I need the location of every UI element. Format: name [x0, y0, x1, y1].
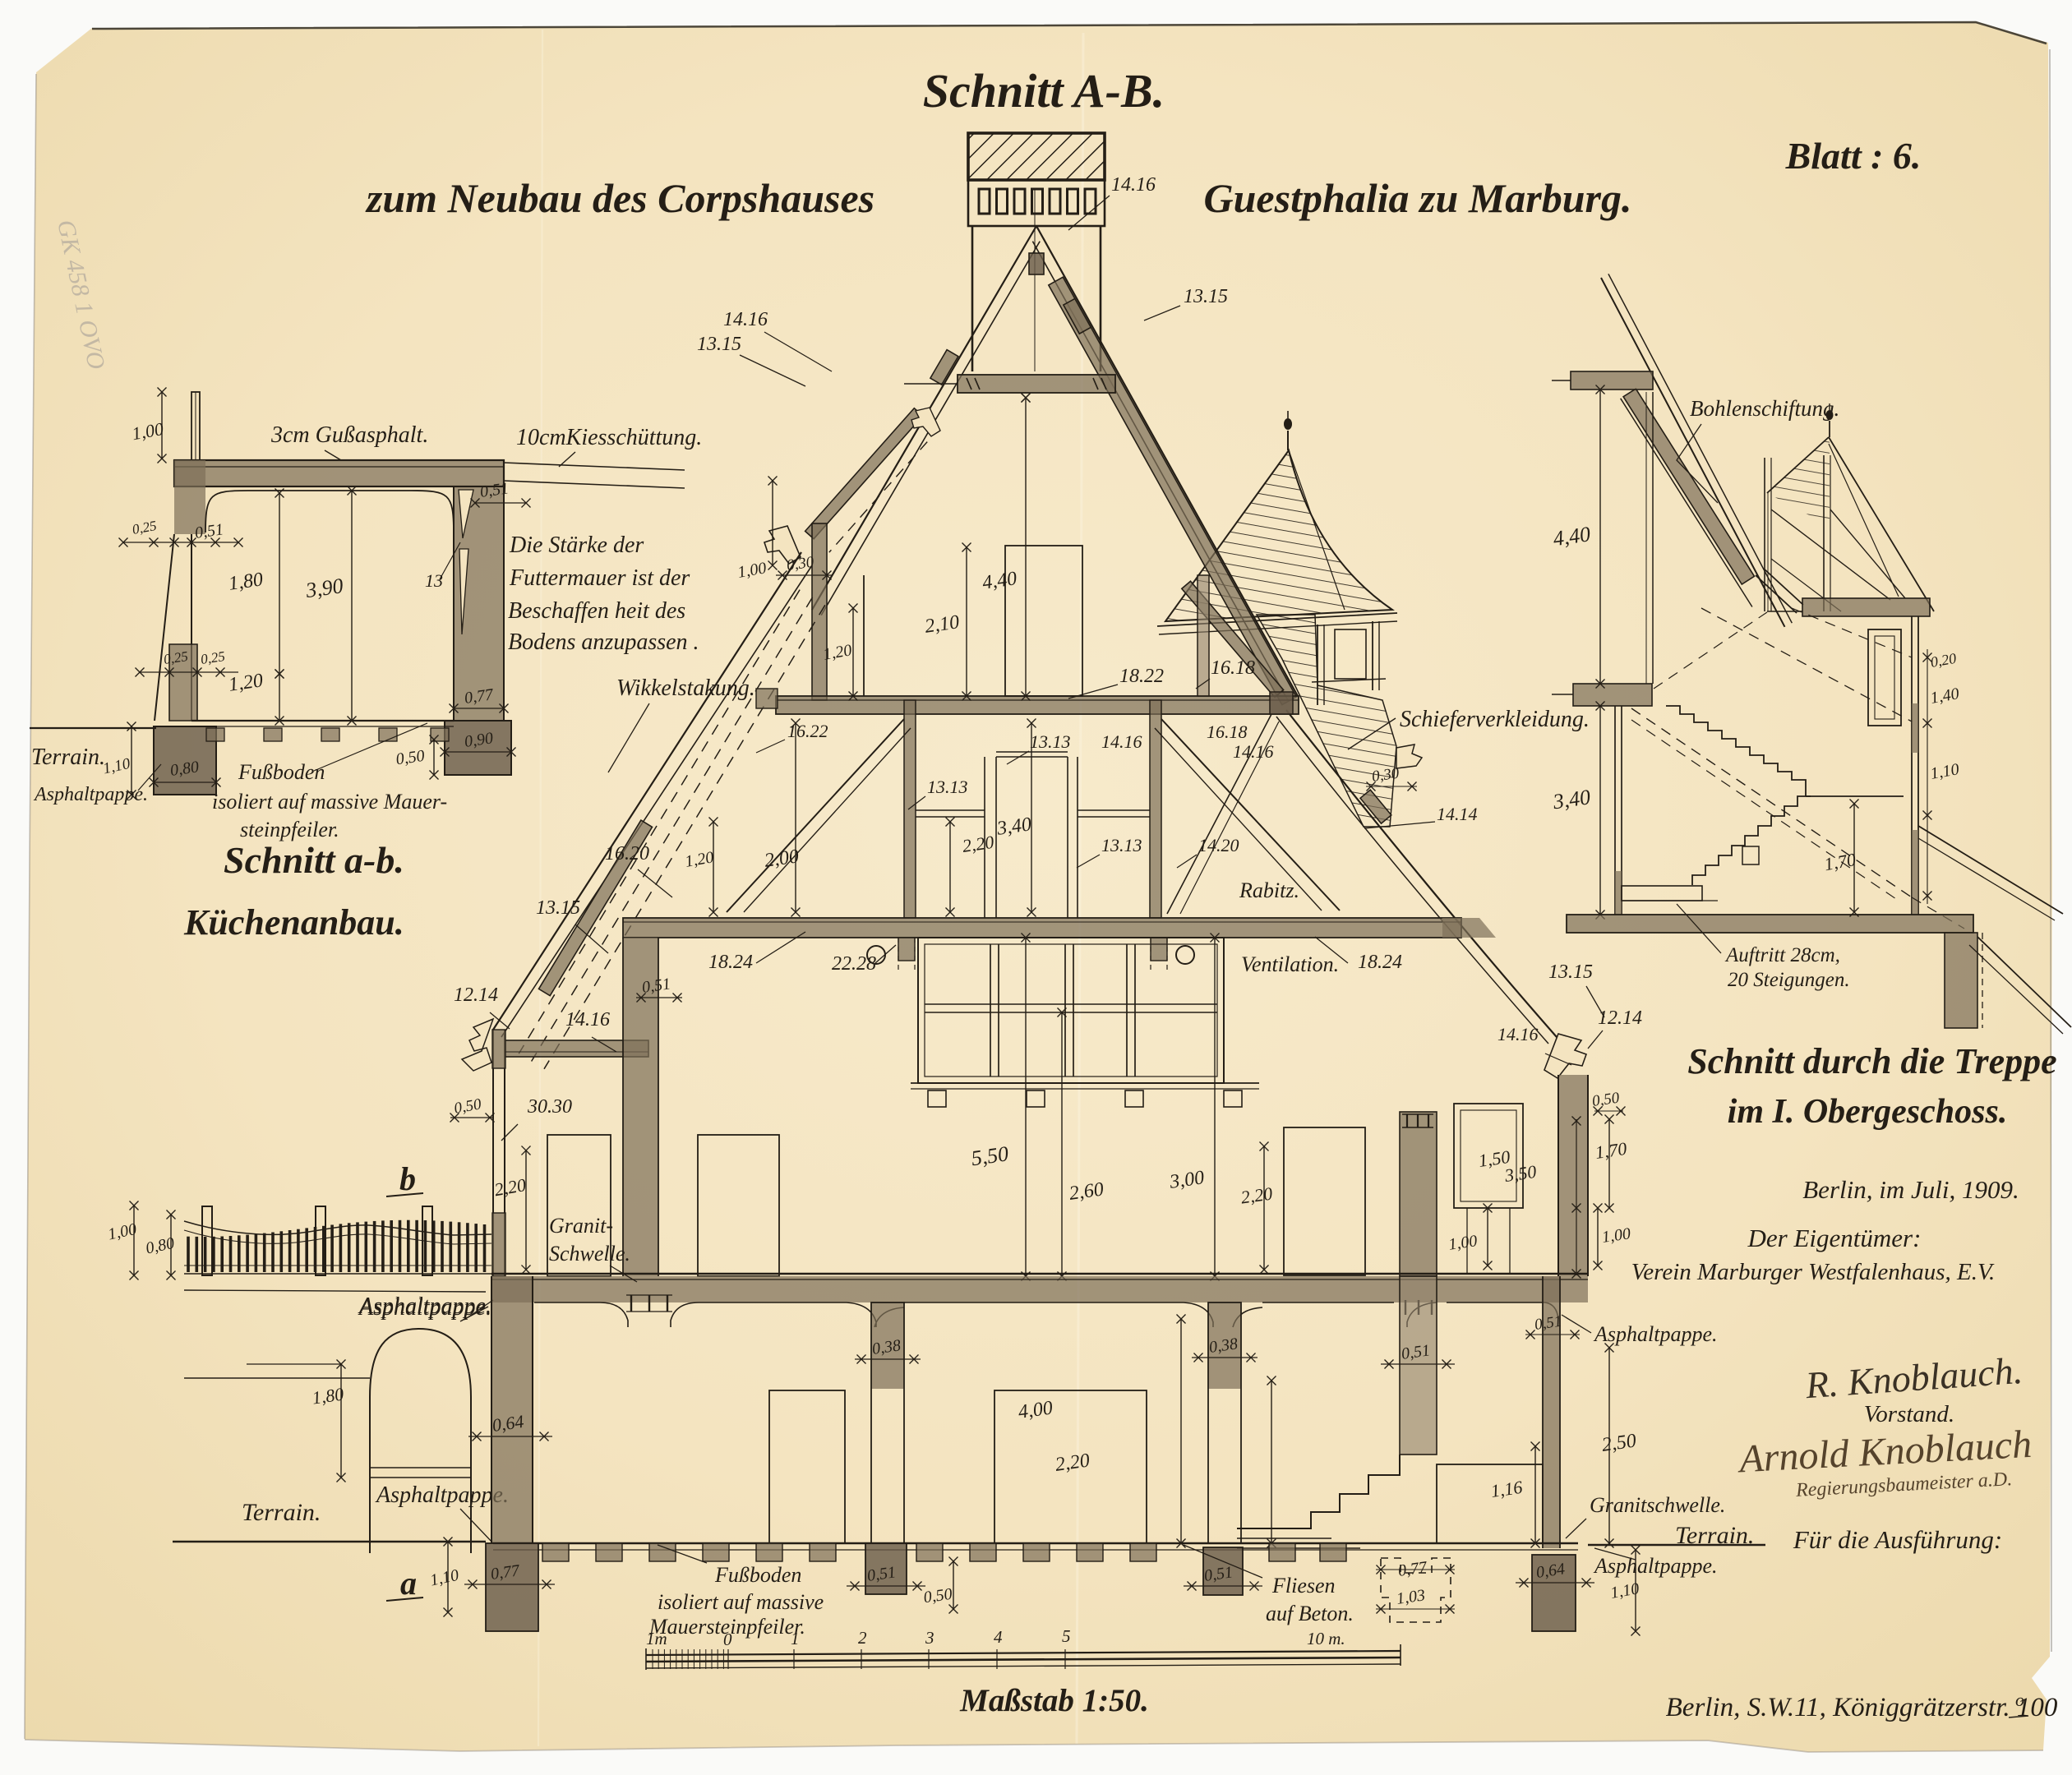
svg-text:b: b [399, 1160, 416, 1197]
svg-text:3: 3 [925, 1628, 934, 1648]
svg-text:Fußboden: Fußboden [238, 760, 325, 784]
svg-text:Schieferverkleidung.: Schieferverkleidung. [1400, 707, 1590, 732]
svg-text:a: a [400, 1565, 417, 1602]
svg-text:2,20: 2,20 [1239, 1183, 1274, 1208]
svg-text:30.30: 30.30 [527, 1096, 572, 1118]
svg-text:16.18: 16.18 [1207, 722, 1248, 742]
svg-text:Futtermauer ist der: Futtermauer ist der [509, 565, 690, 591]
svg-text:Blatt : 6.: Blatt : 6. [1785, 135, 1922, 177]
svg-text:20 Steigungen.: 20 Steigungen. [1728, 969, 1850, 991]
svg-text:14.20: 14.20 [1198, 835, 1239, 855]
svg-text:Asphaltpappe.: Asphaltpappe. [375, 1482, 509, 1508]
svg-text:13.15: 13.15 [1548, 961, 1593, 983]
svg-text:1,16: 1,16 [1489, 1477, 1524, 1501]
svg-text:Schnitt a-b.: Schnitt a-b. [224, 839, 404, 881]
svg-text:Asphaltpappe.: Asphaltpappe. [33, 784, 148, 805]
svg-text:Bodens anzupassen .: Bodens anzupassen . [508, 629, 699, 655]
svg-text:22.28: 22.28 [832, 953, 876, 975]
svg-text:steinpfeiler.: steinpfeiler. [240, 818, 339, 841]
svg-text:Terrain.: Terrain. [31, 745, 105, 770]
svg-text:Fliesen: Fliesen [1271, 1574, 1336, 1597]
svg-text:Granitschwelle.: Granitschwelle. [1590, 1493, 1725, 1517]
svg-text:14.14: 14.14 [1437, 804, 1478, 824]
svg-text:1m: 1m [646, 1629, 667, 1648]
svg-text:o: o [2015, 1690, 2024, 1710]
svg-text:Terrain.: Terrain. [242, 1499, 321, 1526]
svg-text:14.16: 14.16 [723, 309, 768, 330]
svg-text:Berlin, im Juli, 1909.: Berlin, im Juli, 1909. [1802, 1175, 2019, 1204]
svg-text:10 m.: 10 m. [1307, 1629, 1345, 1648]
svg-text:Fußboden: Fußboden [714, 1563, 801, 1587]
svg-text:Der Eigentümer:: Der Eigentümer: [1747, 1224, 1922, 1252]
svg-text:18.24: 18.24 [708, 952, 753, 973]
svg-text:0,64: 0,64 [491, 1411, 525, 1436]
svg-text:18.22: 18.22 [1119, 666, 1164, 687]
svg-text:Asphaltpappe.: Asphaltpappe. [1593, 1554, 1718, 1578]
svg-text:Die Stärke der: Die Stärke der [509, 532, 644, 558]
svg-text:13.15: 13.15 [1184, 286, 1228, 307]
svg-text:16.18: 16.18 [1211, 657, 1255, 679]
svg-text:14.16: 14.16 [1497, 1024, 1539, 1044]
svg-text:2: 2 [858, 1628, 867, 1648]
svg-text:3cm Gußasphalt.: 3cm Gußasphalt. [270, 422, 428, 448]
svg-text:10cmKiesschüttung.: 10cmKiesschüttung. [516, 425, 702, 450]
svg-text:Guestphalia zu Marburg.: Guestphalia zu Marburg. [1204, 175, 1632, 221]
svg-text:12.14: 12.14 [454, 984, 498, 1006]
svg-text:Beschaffen heit des: Beschaffen heit des [508, 598, 685, 624]
svg-text:Maßstab 1:50.: Maßstab 1:50. [959, 1683, 1149, 1718]
svg-text:16.22: 16.22 [787, 721, 828, 741]
svg-text:0: 0 [723, 1630, 732, 1649]
svg-text:Asphaltpappe.: Asphaltpappe. [1593, 1322, 1718, 1346]
svg-text:14.16: 14.16 [565, 1009, 610, 1030]
svg-text:13.13: 13.13 [1101, 835, 1142, 855]
svg-text:Vorstand.: Vorstand. [1864, 1401, 1954, 1427]
svg-text:Küchenanbau.: Küchenanbau. [183, 902, 404, 943]
svg-text:Auftritt 28cm,: Auftritt 28cm, [1724, 944, 1840, 966]
svg-text:zum Neubau des Corpshauses: zum Neubau des Corpshauses [365, 175, 874, 221]
svg-text:isoliert auf massive Mauer-: isoliert auf massive Mauer- [212, 790, 447, 814]
svg-text:Wikkelstakung.: Wikkelstakung. [616, 675, 755, 701]
svg-text:Ventilation.: Ventilation. [1241, 952, 1339, 976]
svg-text:Schnitt durch die Treppe: Schnitt durch die Treppe [1687, 1041, 2056, 1081]
svg-text:13: 13 [425, 570, 443, 591]
svg-text:isoliert auf massive: isoliert auf massive [658, 1590, 824, 1614]
svg-text:1: 1 [791, 1629, 800, 1648]
svg-text:im I. Obergeschoss.: im I. Obergeschoss. [1728, 1093, 2008, 1131]
svg-text:13.13: 13.13 [1030, 731, 1071, 752]
svg-text:Verein Marburger Westfalenhaus: Verein Marburger Westfalenhaus, E.V. [1631, 1259, 1996, 1285]
svg-text:Für die Ausführung:: Für die Ausführung: [1793, 1525, 2002, 1554]
svg-text:1,80: 1,80 [311, 1384, 345, 1408]
svg-text:13.13: 13.13 [927, 777, 968, 797]
svg-text:4: 4 [994, 1627, 1003, 1647]
svg-text:Schnitt A-B.: Schnitt A-B. [923, 64, 1165, 118]
svg-text:auf Beton.: auf Beton. [1266, 1602, 1354, 1625]
svg-text:Schwelle.: Schwelle. [549, 1242, 630, 1266]
svg-text:14.16: 14.16 [1101, 731, 1142, 752]
svg-text:2,20: 2,20 [961, 832, 995, 856]
svg-text:Rabitz.: Rabitz. [1239, 878, 1299, 902]
svg-text:16.20: 16.20 [605, 843, 649, 864]
svg-text:5: 5 [1062, 1626, 1071, 1646]
svg-text:13.15: 13.15 [697, 334, 741, 355]
svg-text:Granit-: Granit- [549, 1214, 613, 1238]
svg-text:1,70: 1,70 [1594, 1138, 1628, 1163]
svg-text:14.16: 14.16 [1111, 174, 1156, 196]
svg-text:12.14: 12.14 [1598, 1007, 1642, 1029]
svg-text:18.24: 18.24 [1358, 952, 1402, 973]
svg-text:Berlin, S.W.11, Königgrätzerst: Berlin, S.W.11, Königgrätzerstr. 100 [1666, 1693, 2058, 1722]
svg-text:Bohlenschiftung.: Bohlenschiftung. [1690, 396, 1839, 421]
svg-text:13.15: 13.15 [536, 897, 580, 919]
svg-text:14.16: 14.16 [1233, 741, 1274, 762]
